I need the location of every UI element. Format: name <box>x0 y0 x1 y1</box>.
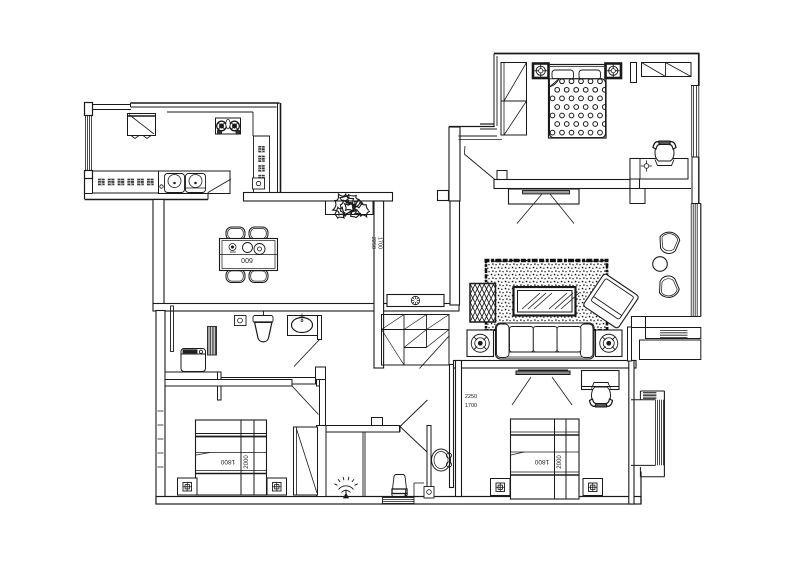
svg-text:1800: 1800 <box>534 458 549 465</box>
svg-text:1700: 1700 <box>377 237 383 249</box>
svg-text:2000: 2000 <box>244 455 250 469</box>
svg-text:1800: 1800 <box>220 458 235 465</box>
svg-text:1700: 1700 <box>465 403 477 409</box>
svg-text:2250: 2250 <box>370 237 376 249</box>
svg-text:2250: 2250 <box>465 394 477 400</box>
svg-text:600: 600 <box>241 256 253 263</box>
svg-text:2000: 2000 <box>557 455 563 469</box>
